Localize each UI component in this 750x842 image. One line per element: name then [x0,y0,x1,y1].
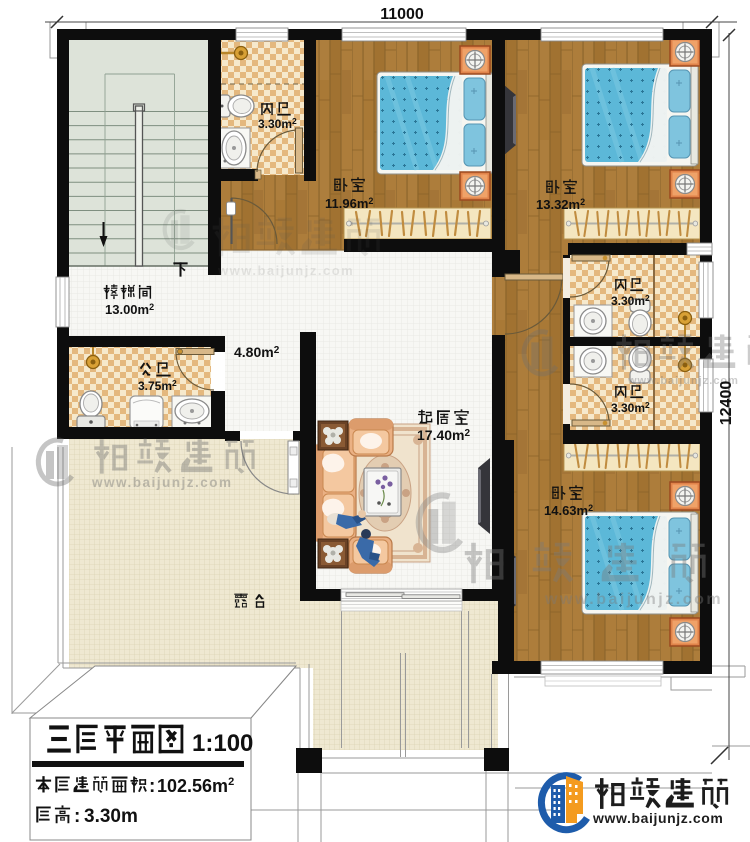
svg-text::: : [149,776,155,797]
svg-text:17.40m2: 17.40m2 [417,427,470,443]
svg-text:3.30m2: 3.30m2 [611,400,650,415]
svg-text:11000: 11000 [380,6,424,23]
svg-text:3.30m2: 3.30m2 [611,293,650,308]
svg-text:102.56m2: 102.56m2 [157,776,234,796]
svg-text:3.30m2: 3.30m2 [258,116,297,131]
svg-text:www.baijunjz.com: www.baijunjz.com [217,263,354,278]
svg-text:12400: 12400 [718,381,735,426]
svg-text:www.baijunjz.com: www.baijunjz.com [91,475,233,490]
svg-text::: : [74,806,80,827]
svg-text:14.63m2: 14.63m2 [544,503,593,518]
svg-text:3.75m2: 3.75m2 [138,378,177,393]
svg-text:3.30m: 3.30m [84,806,138,827]
svg-text:www.baijunjz.com: www.baijunjz.com [544,591,723,608]
svg-text:1:100: 1:100 [192,730,253,757]
svg-text:www.baijunjz.com: www.baijunjz.com [592,810,723,826]
svg-text:13.32m2: 13.32m2 [536,197,585,212]
svg-text:11.96m2: 11.96m2 [325,196,373,211]
svg-text:13.00m2: 13.00m2 [105,302,154,317]
svg-text:4.80m2: 4.80m2 [234,344,280,360]
